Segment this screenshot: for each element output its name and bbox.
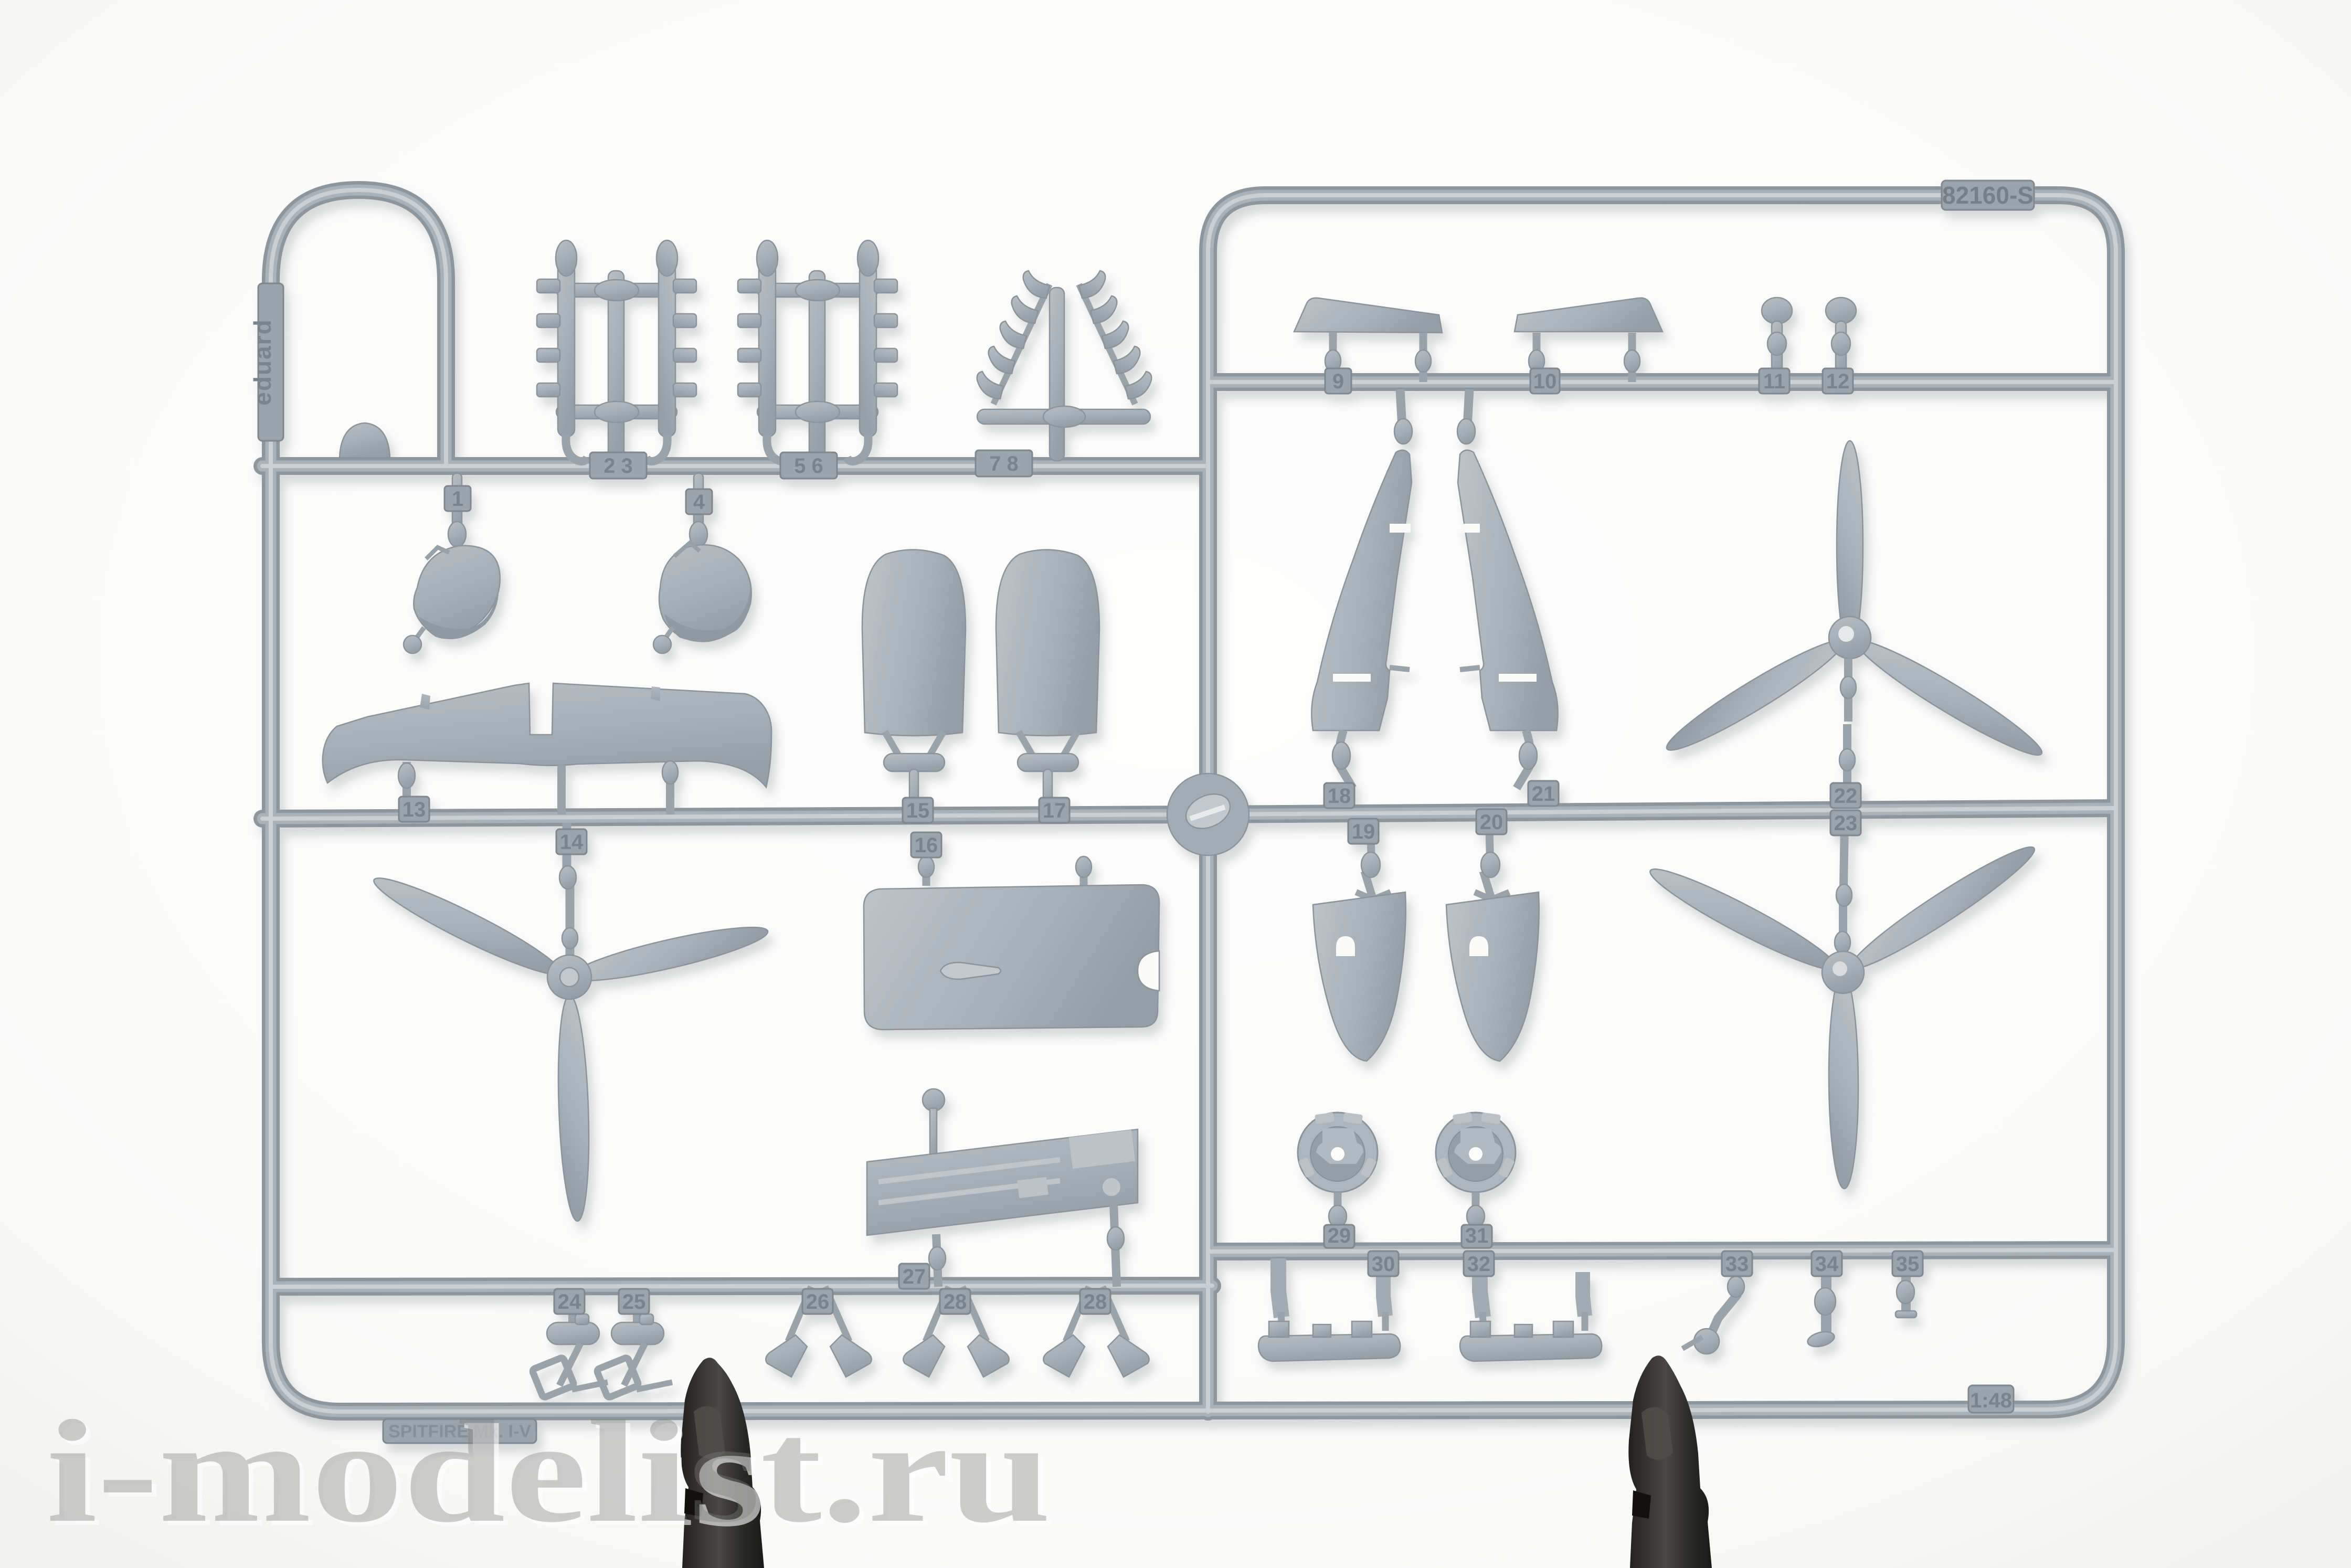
svg-text:4: 4	[693, 491, 705, 514]
svg-text:1:48: 1:48	[1970, 1389, 2012, 1412]
svg-text:31: 31	[1465, 1224, 1489, 1247]
svg-text:2 3: 2 3	[603, 454, 633, 478]
svg-text:21: 21	[1532, 782, 1555, 806]
svg-text:10: 10	[1533, 370, 1557, 393]
svg-text:1: 1	[452, 488, 463, 511]
svg-text:19: 19	[1352, 820, 1375, 843]
svg-text:32: 32	[1467, 1253, 1491, 1276]
svg-text:26: 26	[806, 1290, 830, 1313]
svg-text:5 6: 5 6	[794, 454, 823, 478]
svg-text:13: 13	[403, 798, 426, 821]
svg-text:9: 9	[1332, 370, 1344, 393]
svg-text:28: 28	[944, 1290, 967, 1313]
svg-text:7 8: 7 8	[989, 452, 1019, 475]
svg-text:29: 29	[1328, 1224, 1351, 1247]
svg-text:22: 22	[1834, 785, 1858, 808]
svg-text:14: 14	[560, 831, 584, 854]
svg-text:34: 34	[1815, 1253, 1839, 1276]
svg-text:27: 27	[903, 1265, 926, 1288]
svg-text:33: 33	[1725, 1253, 1749, 1276]
svg-text:24: 24	[558, 1290, 581, 1313]
svg-text:30: 30	[1372, 1253, 1395, 1276]
svg-text:i-modelist.ru: i-modelist.ru	[46, 1390, 1051, 1553]
svg-text:17: 17	[1043, 799, 1066, 822]
svg-text:11: 11	[1763, 370, 1785, 393]
svg-text:16: 16	[915, 834, 938, 857]
svg-text:20: 20	[1480, 811, 1503, 834]
svg-text:18: 18	[1328, 785, 1351, 808]
svg-text:eduard: eduard	[249, 319, 276, 405]
svg-text:12: 12	[1826, 370, 1850, 393]
svg-text:25: 25	[622, 1290, 646, 1313]
svg-text:28: 28	[1084, 1290, 1107, 1313]
svg-text:23: 23	[1834, 812, 1858, 835]
svg-text:82160-S: 82160-S	[1942, 182, 2034, 209]
svg-text:15: 15	[906, 799, 930, 822]
svg-text:35: 35	[1896, 1253, 1920, 1276]
